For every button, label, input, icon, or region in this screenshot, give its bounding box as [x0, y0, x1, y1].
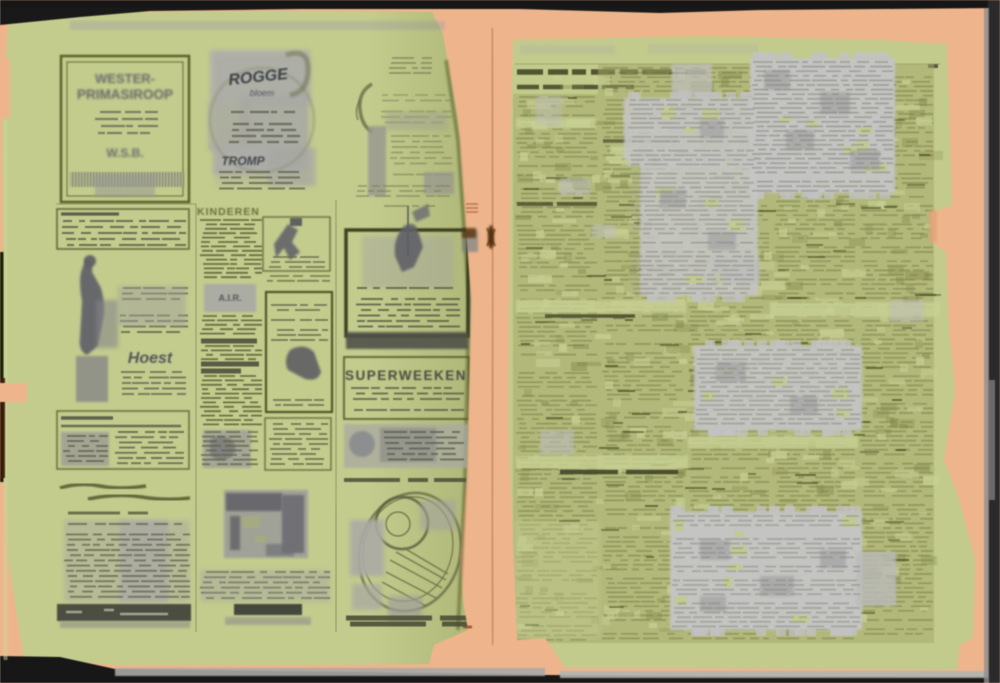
svg-text:TROMP: TROMP [221, 154, 265, 168]
svg-text:Hoest: Hoest [128, 350, 173, 367]
svg-text:bloem: bloem [250, 88, 275, 98]
svg-text:WESTER-: WESTER- [95, 71, 155, 86]
svg-text:A.I.R.: A.I.R. [218, 293, 241, 303]
svg-text:SUPERWEEKEN: SUPERWEEKEN [345, 368, 467, 383]
svg-text:PRIMASIROOP: PRIMASIROOP [77, 87, 173, 102]
svg-text:W.S.B.: W.S.B. [106, 146, 143, 160]
svg-text:KINDEREN: KINDEREN [197, 206, 260, 218]
